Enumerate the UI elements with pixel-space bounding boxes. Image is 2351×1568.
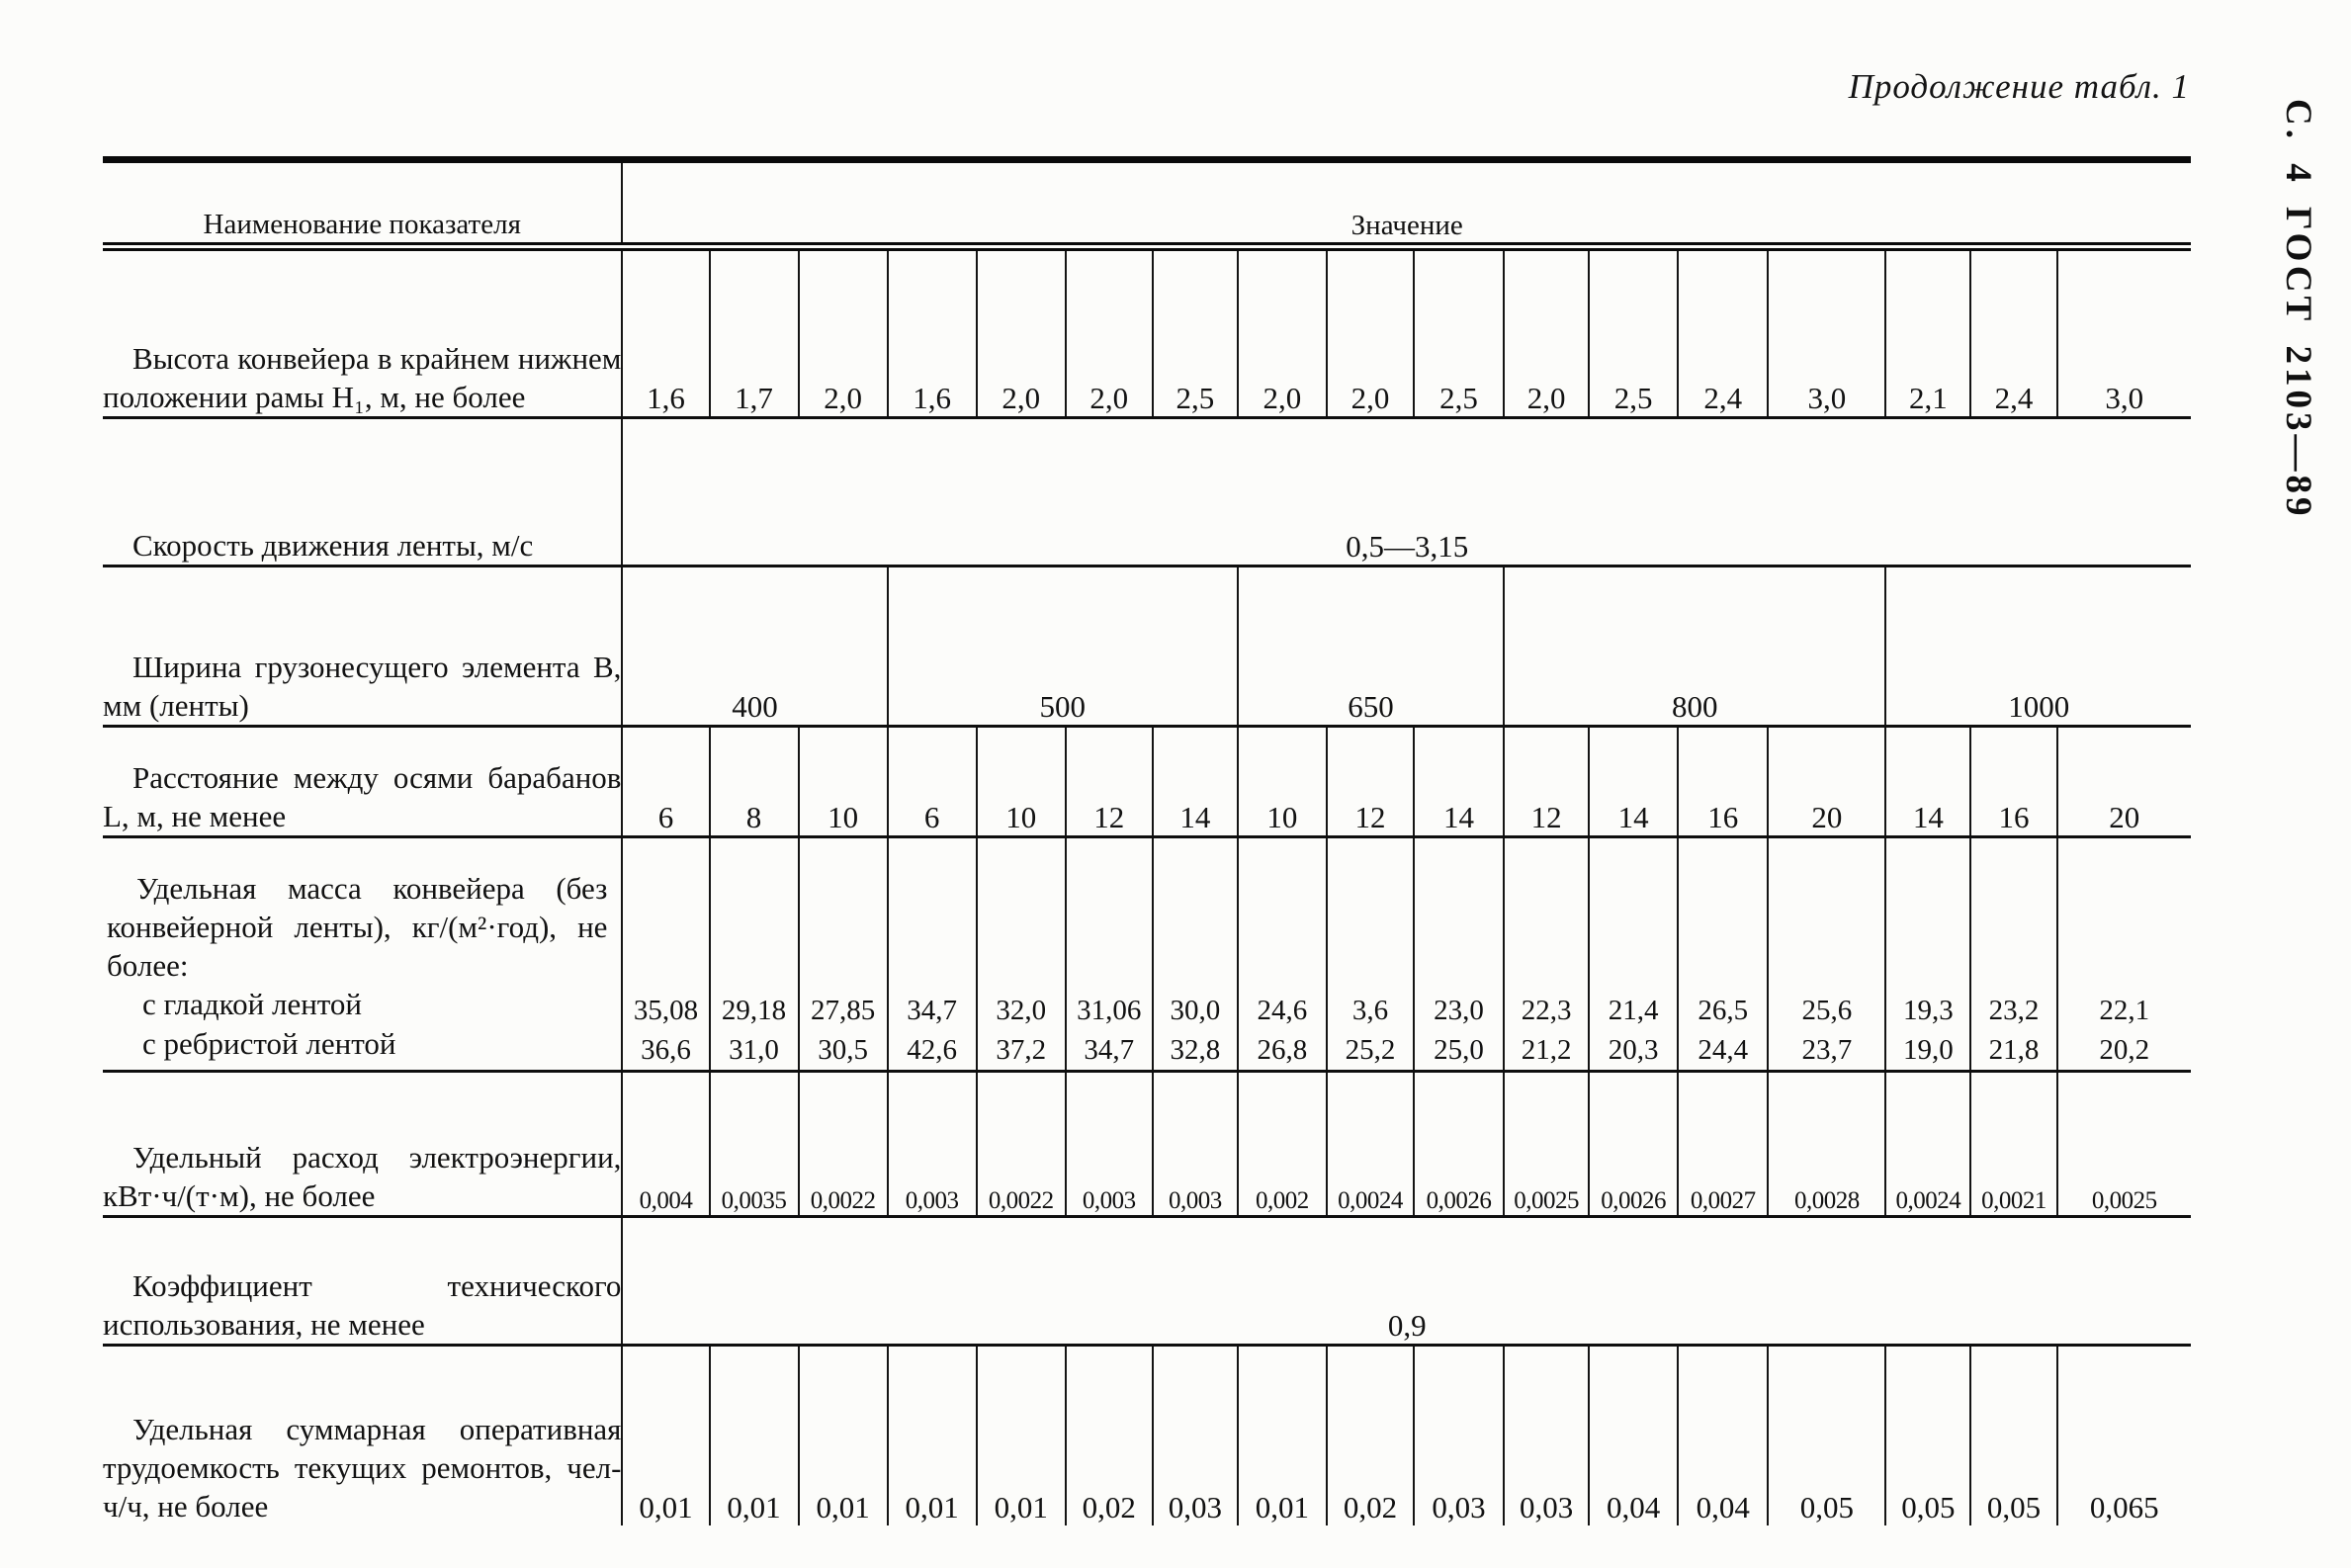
gost-side-note: С. 4 ГОСТ 2103—89	[2277, 99, 2319, 519]
row-repair-labor: Удельная суммарная оперативная трудоемко…	[103, 1346, 2191, 1525]
value-cell: 10	[1238, 727, 1327, 837]
value-cell: 30,0 32,8	[1153, 837, 1238, 1072]
value-cell: 1000	[1885, 566, 2191, 727]
value-cell: 0,03	[1504, 1346, 1589, 1525]
value-cell: 0,01	[799, 1346, 888, 1525]
value-cell: 6	[888, 727, 977, 837]
value-cell: 0,01	[622, 1346, 709, 1525]
value-cell: 2,0	[799, 247, 888, 418]
row-label-utilization-coefficient: Коэффициент технического использования, …	[103, 1217, 622, 1346]
value-cell: 2,0	[1238, 247, 1327, 418]
value-cell: 0,0024	[1327, 1072, 1414, 1217]
value-cell: 0,5—3,15	[622, 418, 2191, 566]
value-cell: 0,0026	[1589, 1072, 1678, 1217]
value-cell: 2,1	[1885, 247, 1970, 418]
value-cell: 0,0027	[1678, 1072, 1768, 1217]
header-row: Наименование показателя Значение	[103, 160, 2191, 247]
value-cell: 2,5	[1589, 247, 1678, 418]
value-cell: 10	[799, 727, 888, 837]
value-cell: 22,1 20,2	[2057, 837, 2192, 1072]
value-cell: 0,0021	[1970, 1072, 2056, 1217]
value-cell: 0,05	[1970, 1346, 2056, 1525]
value-cell: 14	[1153, 727, 1238, 837]
value-cell: 2,4	[1678, 247, 1768, 418]
sub-label-smooth-belt: с гладкой лентой	[107, 985, 607, 1024]
value-cell: 0,003	[1153, 1072, 1238, 1217]
value-cell: 0,003	[888, 1072, 977, 1217]
value-cell: 0,0025	[2057, 1072, 2192, 1217]
row-label-specific-mass: Удельная масса конвейера (без конвейерно…	[103, 837, 622, 1072]
row-label-energy-consumption: Удельный расход электроэнергии, кВт·ч/(т…	[103, 1072, 622, 1217]
row-label-repair-labor: Удельная суммарная оперативная трудоемко…	[103, 1346, 622, 1525]
value-cell: 24,6 26,8	[1238, 837, 1327, 1072]
value-cell: 26,5 24,4	[1678, 837, 1768, 1072]
value-cell: 800	[1504, 566, 1885, 727]
value-cell: 19,3 19,0	[1885, 837, 1970, 1072]
value-cell: 10	[977, 727, 1066, 837]
value-cell: 20	[1768, 727, 1885, 837]
value-cell: 0,04	[1678, 1346, 1768, 1525]
value-cell: 2,0	[1327, 247, 1414, 418]
value-cell: 0,01	[977, 1346, 1066, 1525]
value-cell: 12	[1327, 727, 1414, 837]
value-cell: 0,065	[2057, 1346, 2192, 1525]
value-cell: 35,08 36,6	[622, 837, 709, 1072]
value-cell: 0,003	[1066, 1072, 1153, 1217]
value-cell: 0,0024	[1885, 1072, 1970, 1217]
value-cell: 21,4 20,3	[1589, 837, 1678, 1072]
value-cell: 12	[1504, 727, 1589, 837]
row-label-drum-distance: Расстояние между осями барабанов L, м, н…	[103, 727, 622, 837]
value-cell: 16	[1970, 727, 2056, 837]
value-cell: 20	[2057, 727, 2192, 837]
value-cell: 6	[622, 727, 709, 837]
value-cell: 0,03	[1153, 1346, 1238, 1525]
row-label-belt-width: Ширина грузонесущего элемента B, мм (лен…	[103, 566, 622, 727]
value-cell: 0,002	[1238, 1072, 1327, 1217]
row-height: Высота конвейера в крайнем нижнем положе…	[103, 247, 2191, 418]
value-cell: 2,5	[1153, 247, 1238, 418]
header-value-col: Значение	[622, 160, 2191, 247]
header-name-col: Наименование показателя	[103, 160, 622, 247]
value-cell: 0,004	[622, 1072, 709, 1217]
row-label-height: Высота конвейера в крайнем нижнем положе…	[103, 247, 622, 418]
row-utilization-coefficient: Коэффициент технического использования, …	[103, 1217, 2191, 1346]
value-cell: 0,0035	[710, 1072, 799, 1217]
value-cell: 0,03	[1414, 1346, 1504, 1525]
value-cell: 1,6	[888, 247, 977, 418]
value-cell: 23,2 21,8	[1970, 837, 2056, 1072]
value-cell: 0,05	[1885, 1346, 1970, 1525]
value-cell: 0,02	[1066, 1346, 1153, 1525]
table-continuation-caption: Продолжение табл. 1	[1438, 67, 2190, 107]
row-energy-consumption: Удельный расход электроэнергии, кВт·ч/(т…	[103, 1072, 2191, 1217]
value-cell: 32,0 37,2	[977, 837, 1066, 1072]
value-cell: 500	[888, 566, 1238, 727]
value-cell: 2,4	[1970, 247, 2056, 418]
value-cell: 0,0022	[799, 1072, 888, 1217]
value-cell: 400	[622, 566, 887, 727]
value-cell: 0,0026	[1414, 1072, 1504, 1217]
value-cell: 16	[1678, 727, 1768, 837]
value-cell: 0,05	[1768, 1346, 1885, 1525]
row-specific-mass: Удельная масса конвейера (без конвейерно…	[103, 837, 2191, 1072]
value-cell: 31,06 34,7	[1066, 837, 1153, 1072]
value-cell: 0,0025	[1504, 1072, 1589, 1217]
value-cell: 1,7	[710, 247, 799, 418]
value-cell: 3,0	[2057, 247, 2192, 418]
value-cell: 14	[1885, 727, 1970, 837]
value-cell: 0,01	[710, 1346, 799, 1525]
value-cell: 3,6 25,2	[1327, 837, 1414, 1072]
value-cell: 0,02	[1327, 1346, 1414, 1525]
value-cell: 22,3 21,2	[1504, 837, 1589, 1072]
document-page: Продолжение табл. 1 С. 4 ГОСТ 2103—89 На…	[0, 0, 2351, 1568]
value-cell: 23,0 25,0	[1414, 837, 1504, 1072]
value-cell: 0,01	[1238, 1346, 1327, 1525]
value-cell: 14	[1414, 727, 1504, 837]
row-belt-width: Ширина грузонесущего элемента B, мм (лен…	[103, 566, 2191, 727]
value-cell: 2,0	[1504, 247, 1589, 418]
value-cell: 29,18 31,0	[710, 837, 799, 1072]
row-belt-speed: Скорость движения ленты, м/с 0,5—3,15	[103, 418, 2191, 566]
spec-table: Наименование показателя Значение Высота …	[103, 156, 2191, 1525]
value-cell: 650	[1238, 566, 1504, 727]
value-cell: 2,5	[1414, 247, 1504, 418]
value-cell: 0,9	[622, 1217, 2191, 1346]
value-cell: 14	[1589, 727, 1678, 837]
value-cell: 8	[710, 727, 799, 837]
value-cell: 1,6	[622, 247, 709, 418]
value-cell: 2,0	[977, 247, 1066, 418]
value-cell: 0,0022	[977, 1072, 1066, 1217]
value-cell: 27,85 30,5	[799, 837, 888, 1072]
value-cell: 0,01	[888, 1346, 977, 1525]
value-cell: 0,04	[1589, 1346, 1678, 1525]
row-drum-distance: Расстояние между осями барабанов L, м, н…	[103, 727, 2191, 837]
value-cell: 3,0	[1768, 247, 1885, 418]
row-label-belt-speed: Скорость движения ленты, м/с	[103, 418, 622, 566]
value-cell: 34,7 42,6	[888, 837, 977, 1072]
specific-mass-paragraph: Удельная масса конвейера (без конвейерно…	[107, 869, 607, 985]
sub-label-ribbed-belt: с ребристой лентой	[107, 1024, 607, 1064]
value-cell: 12	[1066, 727, 1153, 837]
value-cell: 0,0028	[1768, 1072, 1885, 1217]
value-cell: 2,0	[1066, 247, 1153, 418]
value-cell: 25,6 23,7	[1768, 837, 1885, 1072]
